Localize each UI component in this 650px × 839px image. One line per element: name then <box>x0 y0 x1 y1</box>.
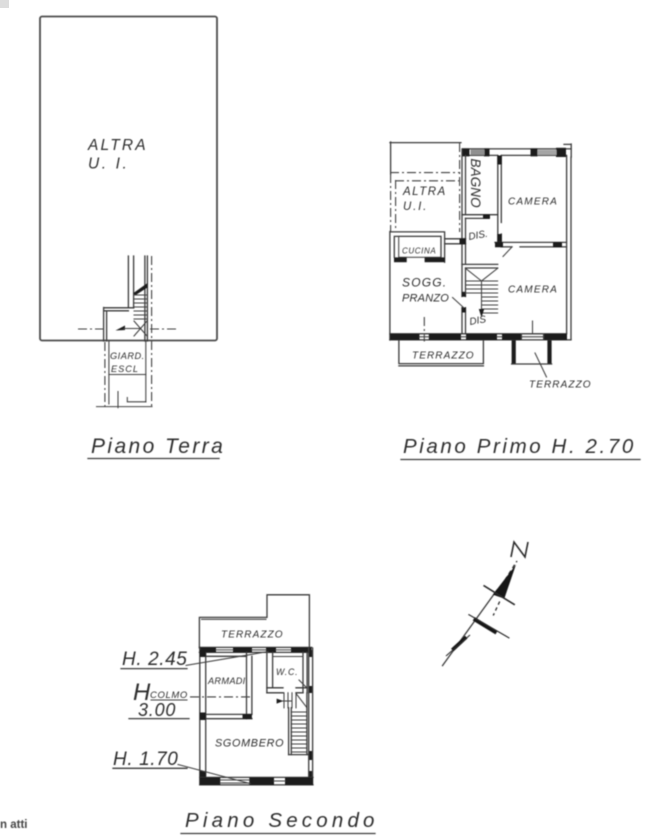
svg-text:CAMERA: CAMERA <box>508 285 558 296</box>
svg-text:H. 2.45: H. 2.45 <box>122 649 187 670</box>
svg-text:U. I.: U. I. <box>88 156 129 173</box>
svg-text:Piano Primo H. 2.70: Piano Primo H. 2.70 <box>403 435 636 458</box>
svg-text:3.00: 3.00 <box>138 700 176 720</box>
svg-text:SOGG.: SOGG. <box>402 276 447 290</box>
svg-text:ALTRA: ALTRA <box>87 137 148 154</box>
svg-text:SGOMBERO: SGOMBERO <box>215 738 284 750</box>
svg-text:n atti: n atti <box>0 819 27 831</box>
svg-text:PRANZO: PRANZO <box>402 293 449 305</box>
svg-text:U.I.: U.I. <box>403 201 428 213</box>
svg-text:GIARD.: GIARD. <box>110 351 145 361</box>
svg-text:TERRAZZO: TERRAZZO <box>221 630 284 641</box>
svg-text:ESCL: ESCL <box>111 364 139 374</box>
svg-text:ALTRA: ALTRA <box>402 186 447 198</box>
svg-text:BAGNO: BAGNO <box>468 159 483 209</box>
svg-text:Piano Terra: Piano Terra <box>91 435 225 458</box>
svg-text:ARMADI: ARMADI <box>207 676 246 686</box>
svg-text:TERRAZZO: TERRAZZO <box>412 351 475 362</box>
svg-text:TERRAZZO: TERRAZZO <box>529 380 592 391</box>
svg-text:CUCINA: CUCINA <box>402 247 436 256</box>
svg-text:W.C.: W.C. <box>276 667 298 677</box>
svg-text:CAMERA: CAMERA <box>508 197 558 208</box>
svg-text:Piano Secondo: Piano Secondo <box>185 809 379 832</box>
svg-text:H. 1.70: H. 1.70 <box>113 749 178 770</box>
